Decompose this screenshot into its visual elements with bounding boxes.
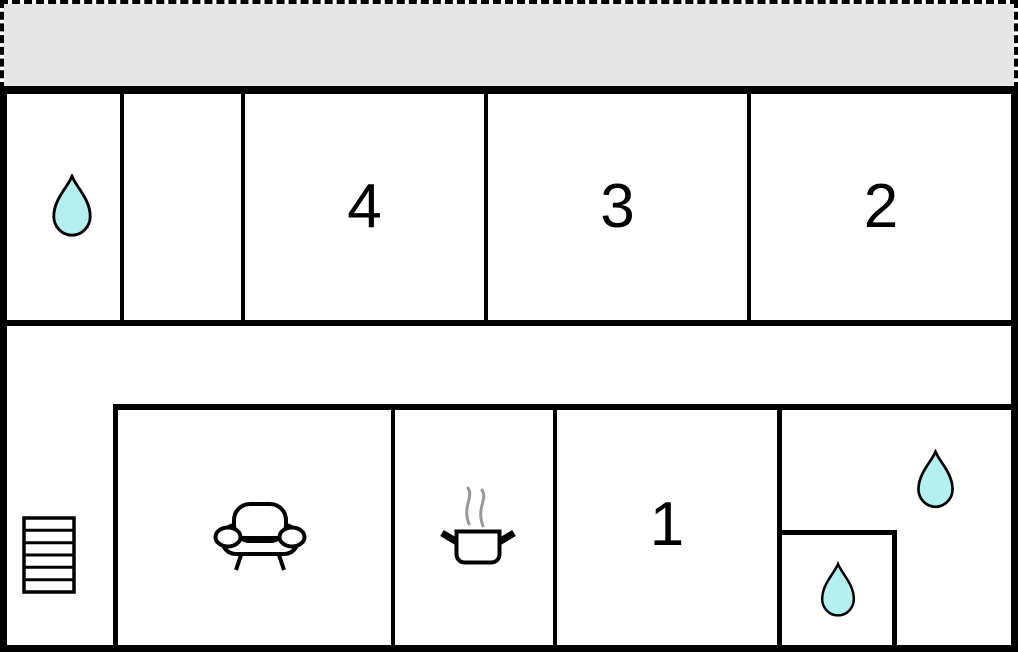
room-bedroom-2: 2 (751, 94, 1011, 320)
stairs-icon (22, 516, 76, 594)
water-drop-icon (914, 449, 957, 510)
cooking-pot-icon (436, 484, 516, 568)
floor-plan: 4 3 2 1 (0, 0, 1018, 652)
wall (892, 530, 897, 645)
room-number-4: 4 (347, 176, 381, 238)
water-drop-icon (49, 174, 95, 238)
room-bedroom-1: 1 (557, 404, 777, 645)
terrace-area (0, 0, 1018, 90)
room-bedroom-3: 3 (488, 94, 747, 320)
room-number-1: 1 (650, 494, 684, 556)
sofa-icon (212, 498, 308, 574)
water-drop-icon (818, 559, 858, 621)
room-number-3: 3 (600, 176, 634, 238)
room-bedroom-4: 4 (245, 94, 484, 320)
room-storage (124, 94, 241, 320)
room-number-2: 2 (864, 176, 898, 238)
room-hallway (7, 326, 1012, 404)
room-bathroom-right (782, 410, 1008, 530)
